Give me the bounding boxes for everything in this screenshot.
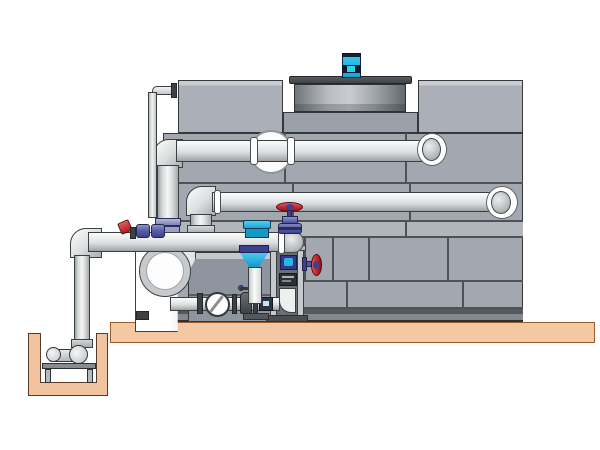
sump-drop-pipe bbox=[74, 255, 90, 343]
tower-center-panel bbox=[283, 112, 418, 133]
tower-top-box-right bbox=[418, 80, 523, 133]
makeup-line bbox=[148, 92, 157, 218]
tower-seam bbox=[163, 182, 523, 184]
tower-seam bbox=[447, 238, 449, 280]
tower-seam bbox=[462, 282, 464, 307]
side-valve-hub bbox=[313, 261, 319, 269]
pump-stand-leg bbox=[45, 369, 51, 383]
tower-top-box-left bbox=[178, 80, 283, 133]
strainer-base bbox=[243, 313, 269, 320]
tower-seam bbox=[405, 222, 407, 236]
ball-valve bbox=[151, 224, 165, 238]
tower-seam bbox=[332, 238, 334, 280]
diagram-canvas bbox=[0, 0, 600, 450]
rack-drain-elbow bbox=[279, 288, 296, 313]
pump-stand-leg bbox=[87, 369, 93, 383]
tower-seam bbox=[368, 238, 370, 280]
rack-base bbox=[266, 315, 308, 322]
upper-pipe-end-dome bbox=[422, 138, 441, 161]
makeup-line-flange bbox=[171, 83, 177, 98]
globe-valve-band bbox=[279, 227, 301, 230]
sump-pump-cap bbox=[69, 345, 88, 364]
fan-cowl-shadow bbox=[295, 104, 405, 111]
strainer-pipe bbox=[248, 267, 262, 304]
lower-pipe-end-dome bbox=[491, 191, 511, 214]
pipe-coupling-ring bbox=[287, 137, 295, 165]
strainer-flange bbox=[239, 245, 269, 253]
separator-foot bbox=[136, 311, 149, 320]
fan-motor-window bbox=[347, 66, 355, 72]
riser-pipe bbox=[157, 165, 179, 223]
pipe-clamp-body bbox=[245, 228, 269, 238]
sump-pump-cap bbox=[46, 347, 61, 362]
flow-block-window bbox=[263, 301, 269, 306]
pipe-flange bbox=[197, 293, 203, 314]
separator-opening bbox=[146, 252, 184, 290]
ball-valve bbox=[136, 224, 150, 238]
pipe-flange bbox=[232, 294, 237, 314]
rack-label-line bbox=[282, 280, 291, 282]
lower-return-pipe bbox=[212, 192, 492, 212]
tower-seam bbox=[346, 282, 348, 307]
pipe-coupling-ring bbox=[250, 137, 258, 165]
rack-label-line bbox=[282, 276, 294, 278]
rack-cyan-glyph bbox=[284, 258, 293, 266]
upper-return-pipe bbox=[176, 140, 422, 162]
pipe-coupling-ring bbox=[214, 190, 221, 214]
concrete-slab bbox=[110, 322, 595, 343]
